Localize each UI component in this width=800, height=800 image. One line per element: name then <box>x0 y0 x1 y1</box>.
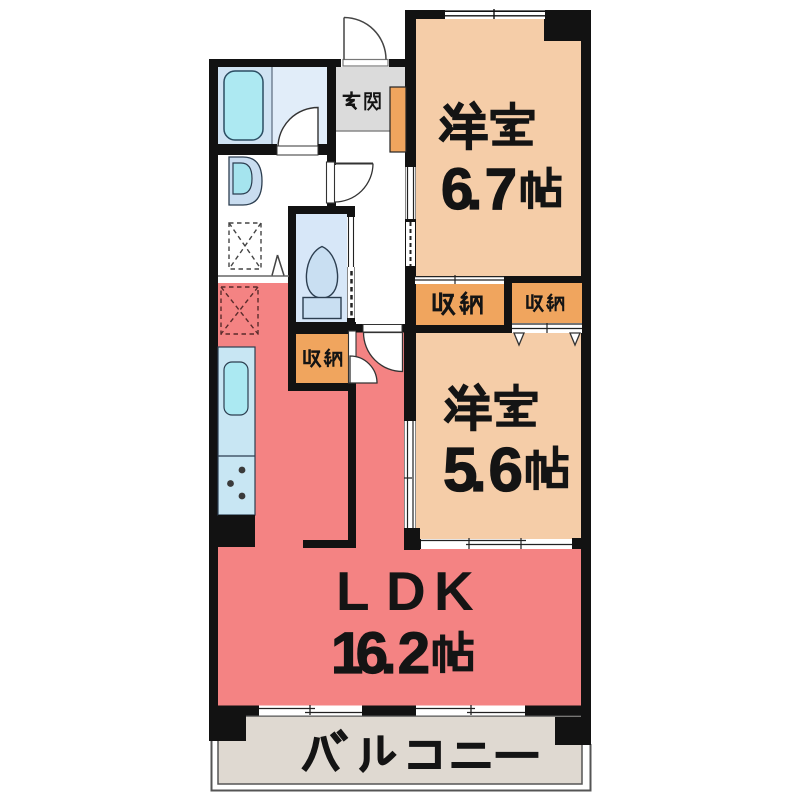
svg-text:L: L <box>336 560 370 622</box>
svg-text:6. 7: 6. 7 <box>441 157 517 222</box>
svg-text:D: D <box>386 560 426 622</box>
svg-text:K: K <box>434 560 474 622</box>
svg-text:16. 2: 16. 2 <box>331 621 430 686</box>
svg-text:5. 6: 5. 6 <box>443 436 523 505</box>
